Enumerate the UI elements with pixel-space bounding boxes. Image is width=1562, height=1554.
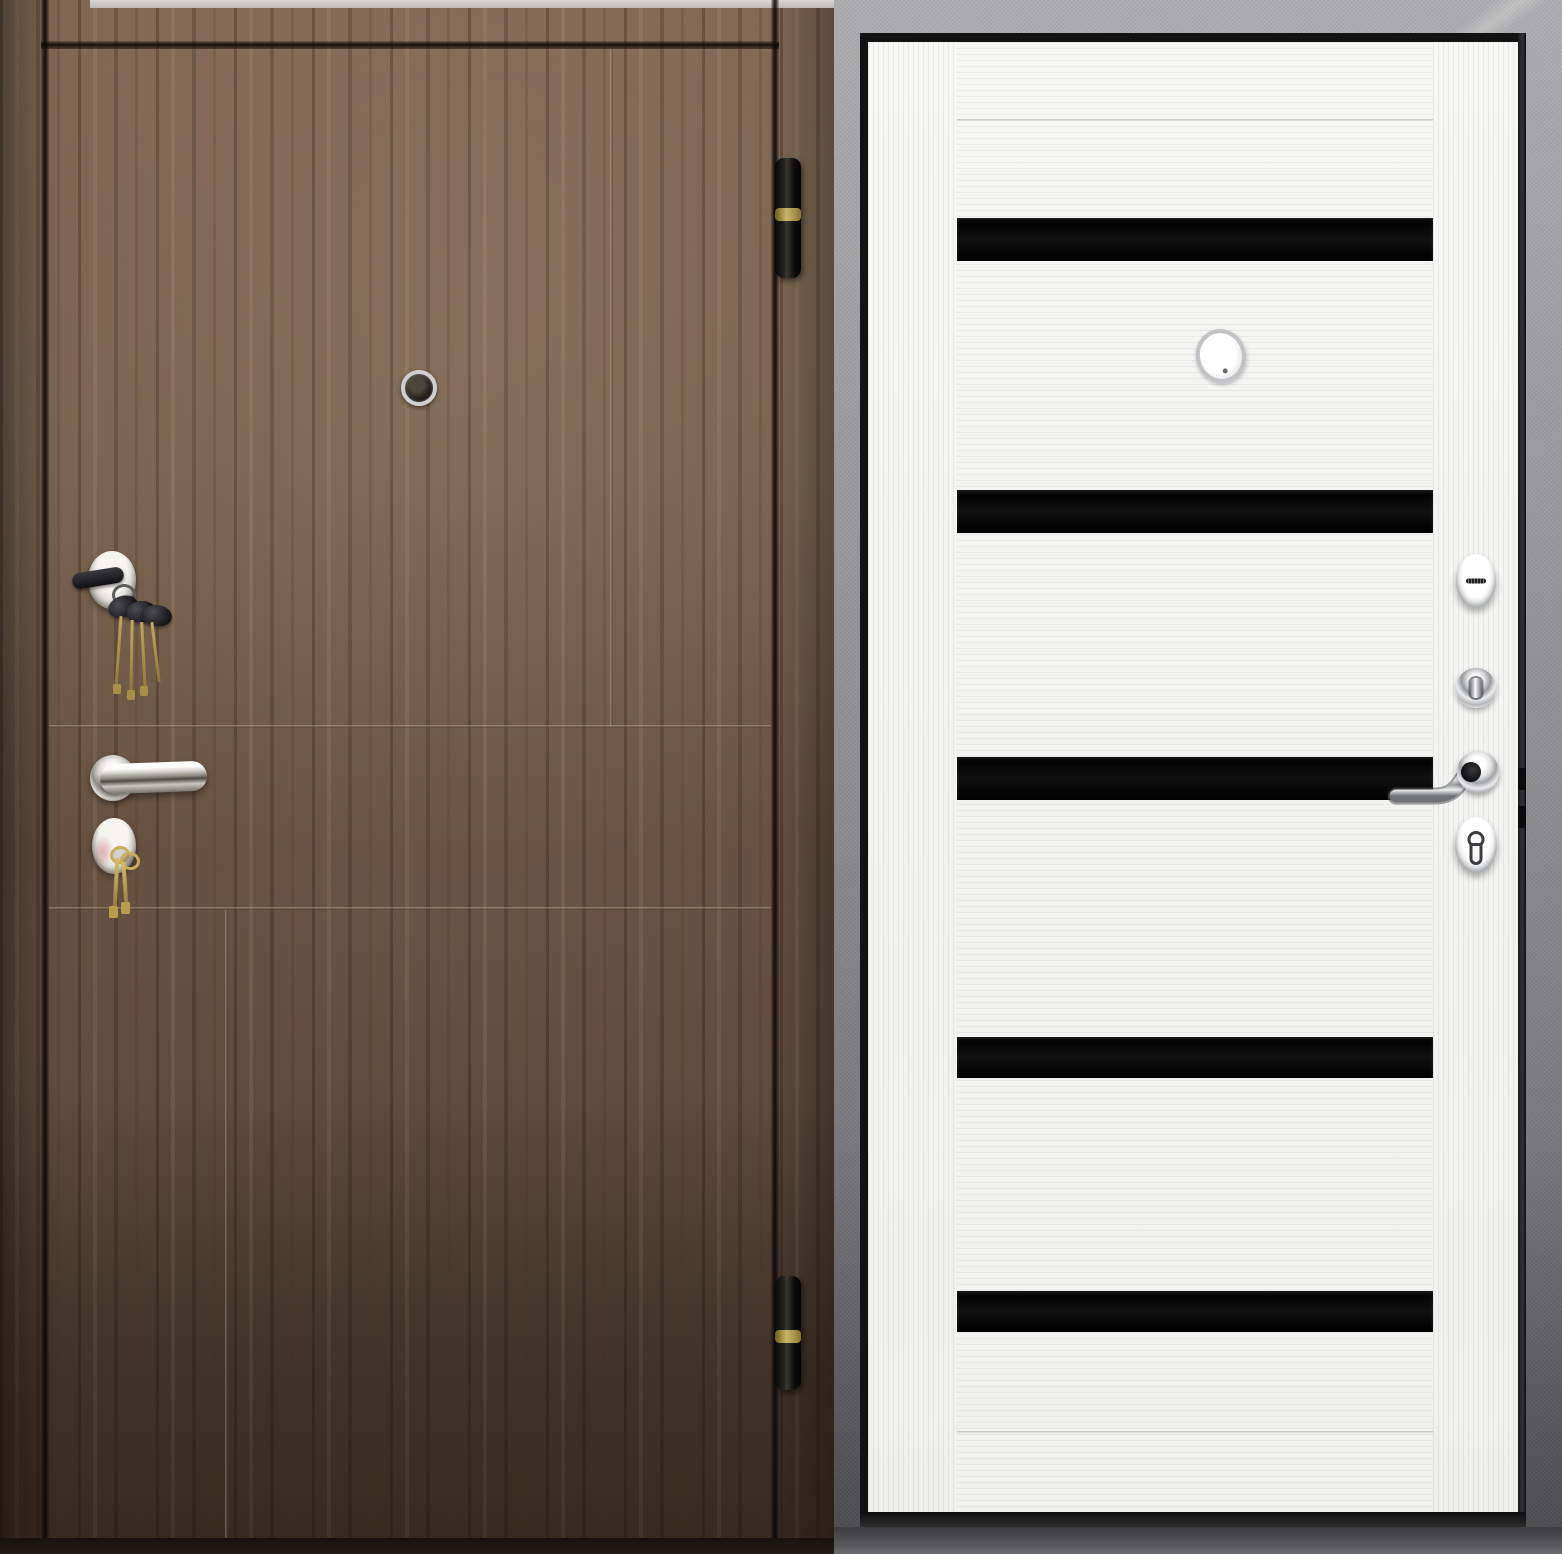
upper-lock-escutcheon-interior xyxy=(1456,554,1496,608)
frame-bottom-band xyxy=(834,1527,1562,1554)
key-shaft xyxy=(113,858,120,910)
stile-left xyxy=(868,42,957,1512)
strike-plate-bolt-notch xyxy=(1518,806,1526,828)
frame-inner-edge-top xyxy=(860,33,1526,42)
frame-gap-left xyxy=(41,0,49,1554)
peephole-exterior xyxy=(401,370,437,406)
hinge-bottom xyxy=(775,1276,801,1390)
glass-stripe-5 xyxy=(957,1291,1433,1332)
door-interior-panel xyxy=(834,0,1562,1554)
key-teeth xyxy=(109,906,118,918)
hinge-brass-band xyxy=(775,208,801,221)
key-teeth xyxy=(121,902,130,914)
cylinder-escutcheon-interior xyxy=(1455,817,1497,873)
handle-rose-interior xyxy=(1457,751,1499,793)
strike-plate-latch-notch xyxy=(1518,768,1526,790)
product-photo-two-door-sides xyxy=(0,0,1562,1554)
glass-stripe-3 xyxy=(957,757,1433,800)
milled-groove-horizontal-2 xyxy=(49,907,771,910)
hinge-brass-band xyxy=(775,1330,801,1343)
door-bottom-shadow xyxy=(0,1538,834,1554)
milled-groove-vertical-upper xyxy=(610,49,613,727)
groove-top xyxy=(957,119,1433,121)
milled-groove-horizontal-1 xyxy=(49,725,771,728)
lever-handle-exterior xyxy=(99,761,207,795)
threshold-shadow xyxy=(860,1512,1526,1527)
keyhole-slot xyxy=(1466,579,1486,584)
hinge-top xyxy=(775,158,801,278)
frame-inner-edge-left xyxy=(860,33,868,1527)
upper-lock-escutcheon xyxy=(88,551,136,609)
glass-stripe-1 xyxy=(957,218,1433,261)
glass-stripe-2 xyxy=(957,490,1433,533)
frame-gap-top xyxy=(41,41,779,49)
groove-bottom xyxy=(957,1431,1433,1433)
white-door-leaf xyxy=(868,42,1518,1512)
milled-groove-vertical-lower xyxy=(225,910,228,1538)
wood-shadow-overlay xyxy=(0,1100,834,1538)
door-exterior-panel xyxy=(0,0,834,1554)
glass-stripe-4 xyxy=(957,1037,1433,1078)
deadbolt-thumbturn xyxy=(1456,668,1496,708)
backdrop-sliver-top xyxy=(90,0,834,8)
gold-keys-lower-lock xyxy=(96,842,146,920)
